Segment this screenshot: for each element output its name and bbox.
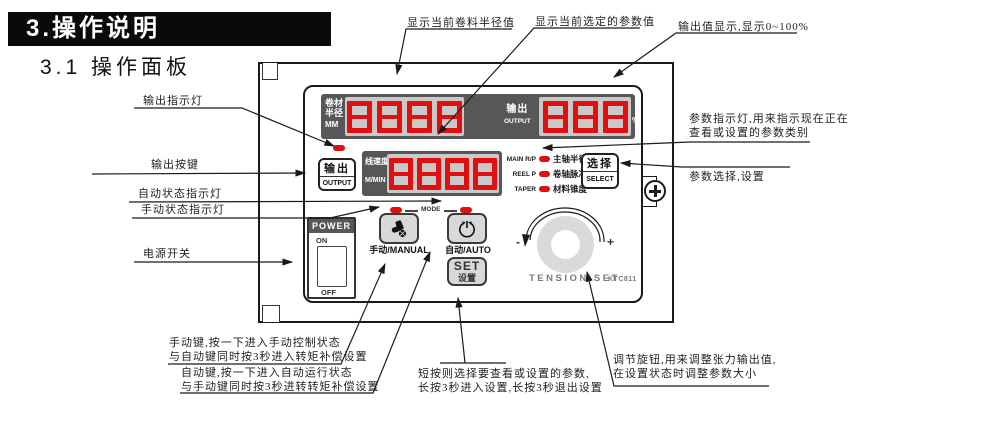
radius-display [345, 97, 464, 136]
annotation-manual-led: 手动状态指示灯 [141, 203, 225, 217]
annotation-set-button: 短按则选择要查看或设置的参数, 长按3秒进入设置,长按3秒退出设置 [418, 367, 603, 395]
power-off-label: OFF [321, 288, 336, 297]
model-label: KTC811 [608, 276, 637, 283]
annotation-knob: 调节旋钮,用来调整张力输出值, 在设置状态时调整参数大小 [613, 353, 777, 381]
seven-segment-digit [417, 158, 441, 190]
seven-segment-digit [377, 101, 402, 133]
knob-plus-label: + [607, 235, 614, 249]
power-on-label: ON [316, 236, 327, 245]
controller-front-panel: 卷材 半径 MM 输出 OUTPUT % [303, 85, 643, 303]
select-button-en-label: SELECT [583, 172, 617, 187]
annotation-param-value-display: 显示当前选定的参数值 [535, 15, 655, 29]
mount-tab-bottom [262, 305, 280, 322]
annotation-auto-button: 自动键,按一下进入自动运行状态 与手动键同时按3秒进转转矩补偿设置 [181, 366, 380, 394]
mode-dash [444, 210, 457, 212]
param-led-reel-p: REEL P 卷轴脉冲 [503, 168, 587, 180]
mode-dash [405, 210, 418, 212]
power-cycle-icon [457, 219, 477, 239]
percent-label: % [632, 116, 639, 126]
seven-segment-digit [603, 101, 628, 133]
seven-segment-digit [437, 101, 462, 133]
annotation-output-button: 输出按键 [151, 158, 199, 172]
select-button[interactable]: 选择 SELECT [581, 153, 619, 189]
tension-knob-cap [551, 230, 580, 259]
speed-label-zh: 线速度 [365, 157, 389, 167]
annotation-param-leds: 参数指示灯,用来指示现在正在 查看或设置的参数类别 [689, 112, 849, 140]
seven-segment-digit [543, 101, 568, 133]
power-rocker[interactable] [317, 246, 347, 287]
set-button[interactable]: SET 设置 [447, 257, 487, 286]
param-led-en-label: REEL P [503, 171, 536, 178]
annotation-select-button: 参数选择,设置 [689, 170, 765, 184]
seven-segment-digit [347, 101, 372, 133]
param-led-en-label: TAPER [503, 186, 536, 193]
annotation-radius-display: 显示当前卷料半径值 [407, 16, 515, 30]
speed-display [387, 154, 499, 193]
mount-tab-top [262, 63, 278, 80]
manual-button[interactable] [379, 213, 419, 244]
annotation-manual-button: 手动键,按一下进入手动控制状态 与自动键同时按3秒进入转矩补偿设置 [169, 336, 368, 364]
tension-set-label: TENSION SET [529, 273, 620, 284]
taper-led [539, 186, 550, 192]
set-button-line1: SET [454, 260, 480, 272]
hand-press-icon [389, 219, 409, 239]
radius-display-label: 卷材 半径 MM [325, 98, 343, 130]
subsection-title: 3.1 操作面板 [40, 51, 191, 81]
radius-unit-label: MM [325, 120, 343, 130]
speed-display-bezel: 线速度 M/MIN [362, 151, 502, 196]
seven-segment-digit [473, 158, 497, 190]
manual-page: 3.操作说明 3.1 操作面板 卷材 半径 MM 输出 OUTPUT [0, 0, 986, 423]
output-display [539, 97, 631, 136]
top-display-bezel: 卷材 半径 MM 输出 OUTPUT % [321, 94, 635, 139]
speed-label-en: M/MIN [365, 176, 386, 186]
output-indicator-led [333, 145, 345, 151]
seven-segment-digit [389, 158, 413, 190]
screw-icon [644, 180, 666, 202]
main-rp-led [539, 156, 550, 162]
seven-segment-digit [573, 101, 598, 133]
manual-button-label: 手动/MANUAL [363, 243, 435, 256]
output-button-zh-label: 输出 [320, 160, 354, 177]
annotation-power-switch: 电源开关 [143, 247, 191, 261]
seven-segment-digit [445, 158, 469, 190]
reel-p-led [539, 171, 550, 177]
param-led-taper: TAPER 材料锥度 [503, 183, 587, 195]
power-switch: POWER ON OFF [307, 217, 356, 299]
seven-segment-digit [407, 101, 432, 133]
auto-button[interactable] [447, 213, 487, 244]
annotation-auto-led: 自动状态指示灯 [138, 187, 222, 201]
output-display-label: 输出 OUTPUT [504, 105, 531, 127]
knob-minus-label: - [516, 235, 520, 249]
annotation-output-led: 输出指示灯 [143, 94, 203, 108]
section-title: 3.操作说明 [8, 12, 331, 46]
power-switch-title: POWER [309, 219, 354, 233]
auto-button-label: 自动/AUTO [445, 243, 491, 256]
mode-label: MODE [421, 206, 441, 213]
set-button-line2: 设置 [454, 272, 480, 284]
output-button[interactable]: 输出 OUTPUT [318, 158, 356, 191]
select-button-zh-label: 选择 [583, 155, 617, 172]
param-led-en-label: MAIN R/P [503, 156, 536, 163]
annotation-output-display: 输出值显示,显示0~100% [678, 20, 809, 34]
output-button-en-label: OUTPUT [320, 177, 354, 189]
